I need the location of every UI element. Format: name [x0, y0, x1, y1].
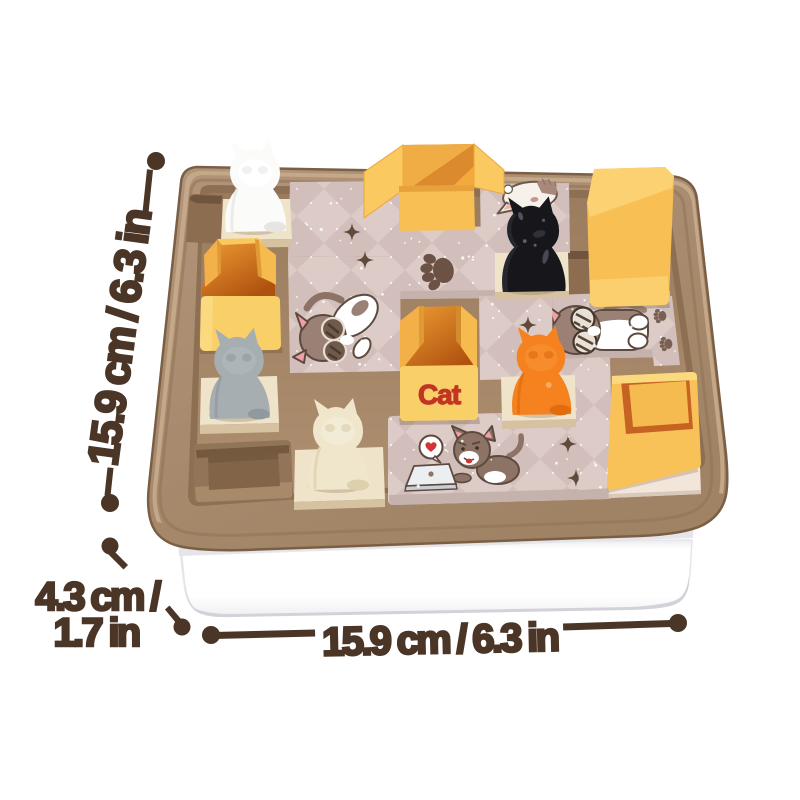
svg-text:15.9 cm / 6.3 in: 15.9 cm / 6.3 in [322, 616, 558, 665]
svg-text:Cat: Cat [418, 379, 461, 410]
svg-text:1.7 in: 1.7 in [53, 611, 138, 655]
